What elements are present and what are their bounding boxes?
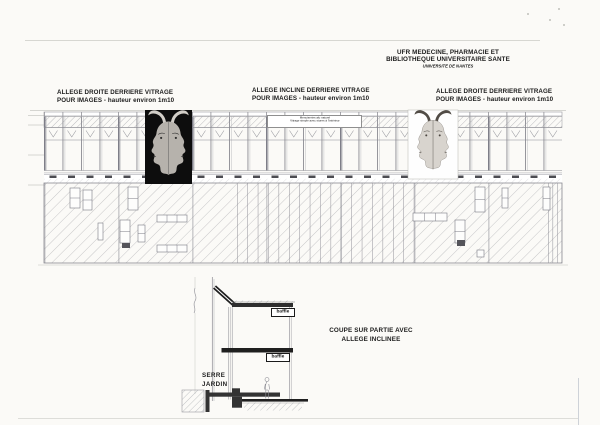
facade-label-left-line2: POUR IMAGES - hauteur environ 1m10: [57, 97, 174, 106]
facade-elevation-drawing: [28, 106, 568, 268]
ground-and-foundation: [182, 388, 308, 412]
room-label-line1: SERRE: [202, 372, 227, 381]
vent-marks: [44, 128, 562, 140]
serre-planter: [182, 390, 204, 412]
facade-label-center: ALLEGE INCLINE DERRIERE VITRAGE POUR IMA…: [252, 87, 370, 104]
scan-line-bottom: [18, 418, 578, 419]
section-caption: COUPE SUR PARTIE AVEC ALLEGE INCLINEE: [312, 327, 430, 345]
scan-speck: [527, 13, 529, 15]
baffle-label-top-text: baffle: [272, 309, 294, 314]
scan-line-top: [25, 40, 540, 41]
scan-speck: [549, 19, 551, 21]
facade-label-center-line1: ALLEGE INCLINE DERRIERE VITRAGE: [252, 87, 370, 96]
glazing-note-line2: Vitrage simple avec stores à l'intérieur: [268, 119, 361, 122]
floor-band: [44, 173, 562, 183]
glazing-note: Menuiseries alu naturel Vitrage simple a…: [267, 115, 362, 128]
baffle-label-mid: baffle: [266, 353, 290, 362]
baffle-label-mid-text: baffle: [267, 354, 289, 359]
lower-wall: [38, 183, 568, 265]
roof-slab: [232, 301, 295, 308]
title-block: UFR MEDECINE, PHARMACIE ET BIBLIOTHEQUE …: [358, 49, 538, 75]
scan-speck: [558, 8, 560, 10]
reference-lines: [28, 116, 44, 186]
janus-image-right: [408, 110, 458, 179]
baffle-label-top: baffle: [271, 308, 295, 317]
org-title-line1: UFR MEDECINE, PHARMACIE ET: [358, 49, 538, 56]
room-label-line2: JARDIN: [202, 381, 227, 390]
section-caption-line2: ALLEGE INCLINEE: [312, 336, 430, 345]
org-title-line3: UNIVERSITE DE NANTES: [410, 64, 486, 69]
facade-label-left: ALLEGE DROITE DERRIERE VITRAGE POUR IMAG…: [57, 89, 174, 106]
scan-speck: [563, 24, 565, 26]
ground-line: [242, 399, 308, 402]
facade-label-left-line1: ALLEGE DROITE DERRIERE VITRAGE: [57, 89, 174, 98]
section-drawing: [180, 274, 315, 416]
section-caption-line1: COUPE SUR PARTIE AVEC: [312, 327, 430, 336]
scan-line-right-edge: [578, 378, 579, 425]
facade-label-right-line1: ALLEGE DROITE DERRIERE VITRAGE: [436, 88, 553, 97]
room-label-serre-jardin: SERRE JARDIN: [202, 372, 227, 390]
inclined-glazing: [215, 287, 235, 305]
org-title-line2: BIBLIOTHEQUE UNIVERSITAIRE SANTE: [358, 56, 538, 63]
janus-image-left: [145, 110, 192, 184]
facade-label-right-line2: POUR IMAGES - hauteur environ 1m10: [436, 96, 553, 105]
scanned-architectural-sheet: UFR MEDECINE, PHARMACIE ET BIBLIOTHEQUE …: [0, 0, 600, 425]
facade-label-right: ALLEGE DROITE DERRIERE VITRAGE POUR IMAG…: [436, 88, 553, 105]
facade-label-center-line2: POUR IMAGES - hauteur environ 1m10: [252, 95, 370, 104]
